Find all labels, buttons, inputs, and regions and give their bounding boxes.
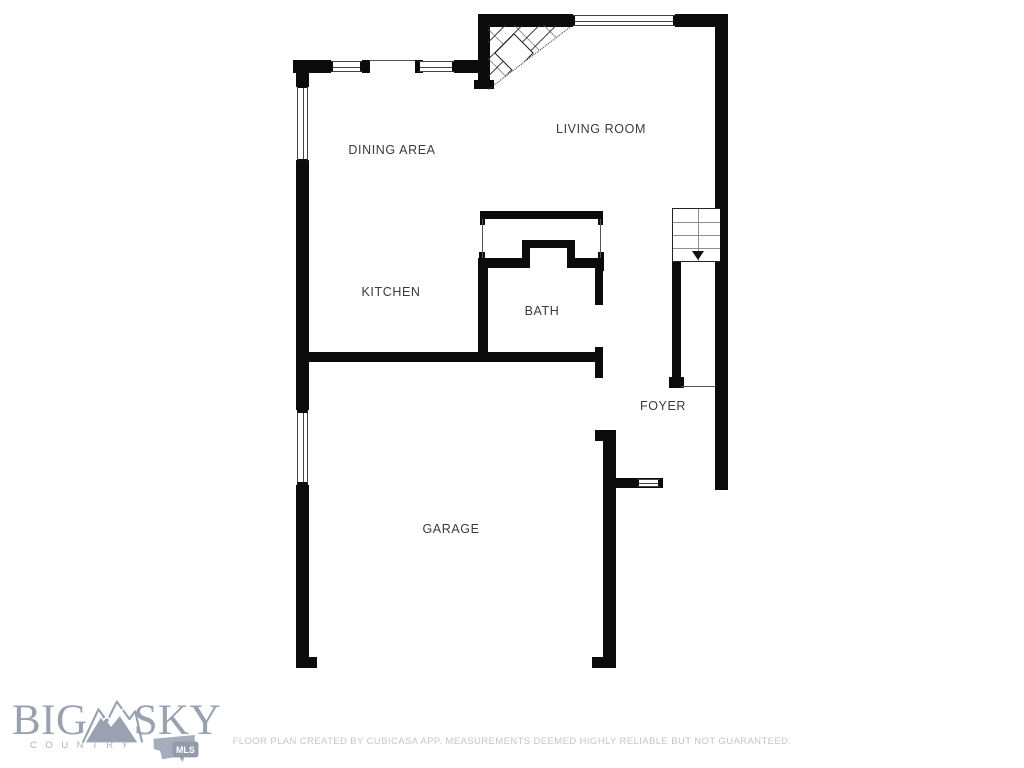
window-symbol	[297, 410, 308, 485]
wall-segment	[296, 657, 317, 668]
staircase-symbol	[672, 208, 720, 262]
wall-segment	[595, 258, 603, 305]
window-symbol	[297, 85, 308, 162]
wall-segment	[603, 440, 616, 657]
window-symbol	[417, 61, 455, 72]
stair-tread-line	[673, 248, 720, 249]
wall-segment	[296, 485, 309, 657]
room-label-foyer: FOYER	[640, 399, 686, 413]
wall-segment	[592, 657, 616, 668]
room-label-garage: GARAGE	[422, 522, 479, 536]
wall-segment	[672, 262, 681, 383]
disclaimer-text: FLOOR PLAN CREATED BY CUBICASA APP. MEAS…	[0, 736, 1024, 747]
room-label-kitchen: KITCHEN	[361, 285, 420, 299]
wall-segment	[478, 258, 488, 362]
stair-tread-line	[673, 235, 720, 236]
wall-segment	[296, 60, 309, 87]
floor-plan-canvas: DINING AREALIVING ROOMKITCHENBATHFOYERGA…	[0, 0, 1024, 768]
wall-segment	[296, 160, 309, 352]
wall-outline	[482, 219, 483, 258]
stair-down-arrow-icon	[692, 251, 704, 260]
wall-outline	[681, 386, 715, 387]
room-label-dining-area: DINING AREA	[348, 143, 435, 157]
wall-segment	[362, 60, 370, 73]
wall-segment	[296, 352, 603, 362]
floor-plan-page: DINING AREALIVING ROOMKITCHENBATHFOYERGA…	[0, 0, 1024, 768]
wall-segment	[595, 430, 616, 441]
wall-outline	[600, 219, 601, 258]
bigsky-logo: BIG SKY COUNTRY MLS	[12, 697, 217, 765]
fireplace-diamond	[494, 33, 534, 73]
window-symbol	[330, 61, 363, 72]
wall-segment	[480, 211, 603, 219]
wall-segment	[454, 60, 480, 73]
wall-segment	[296, 362, 309, 410]
window-symbol	[572, 15, 676, 26]
window-symbol	[636, 479, 661, 487]
room-label-bath: BATH	[525, 304, 560, 318]
wall-segment	[595, 347, 603, 378]
stair-tread-line	[673, 222, 720, 223]
room-label-living-room: LIVING ROOM	[556, 122, 646, 136]
wall-outline	[369, 60, 415, 61]
